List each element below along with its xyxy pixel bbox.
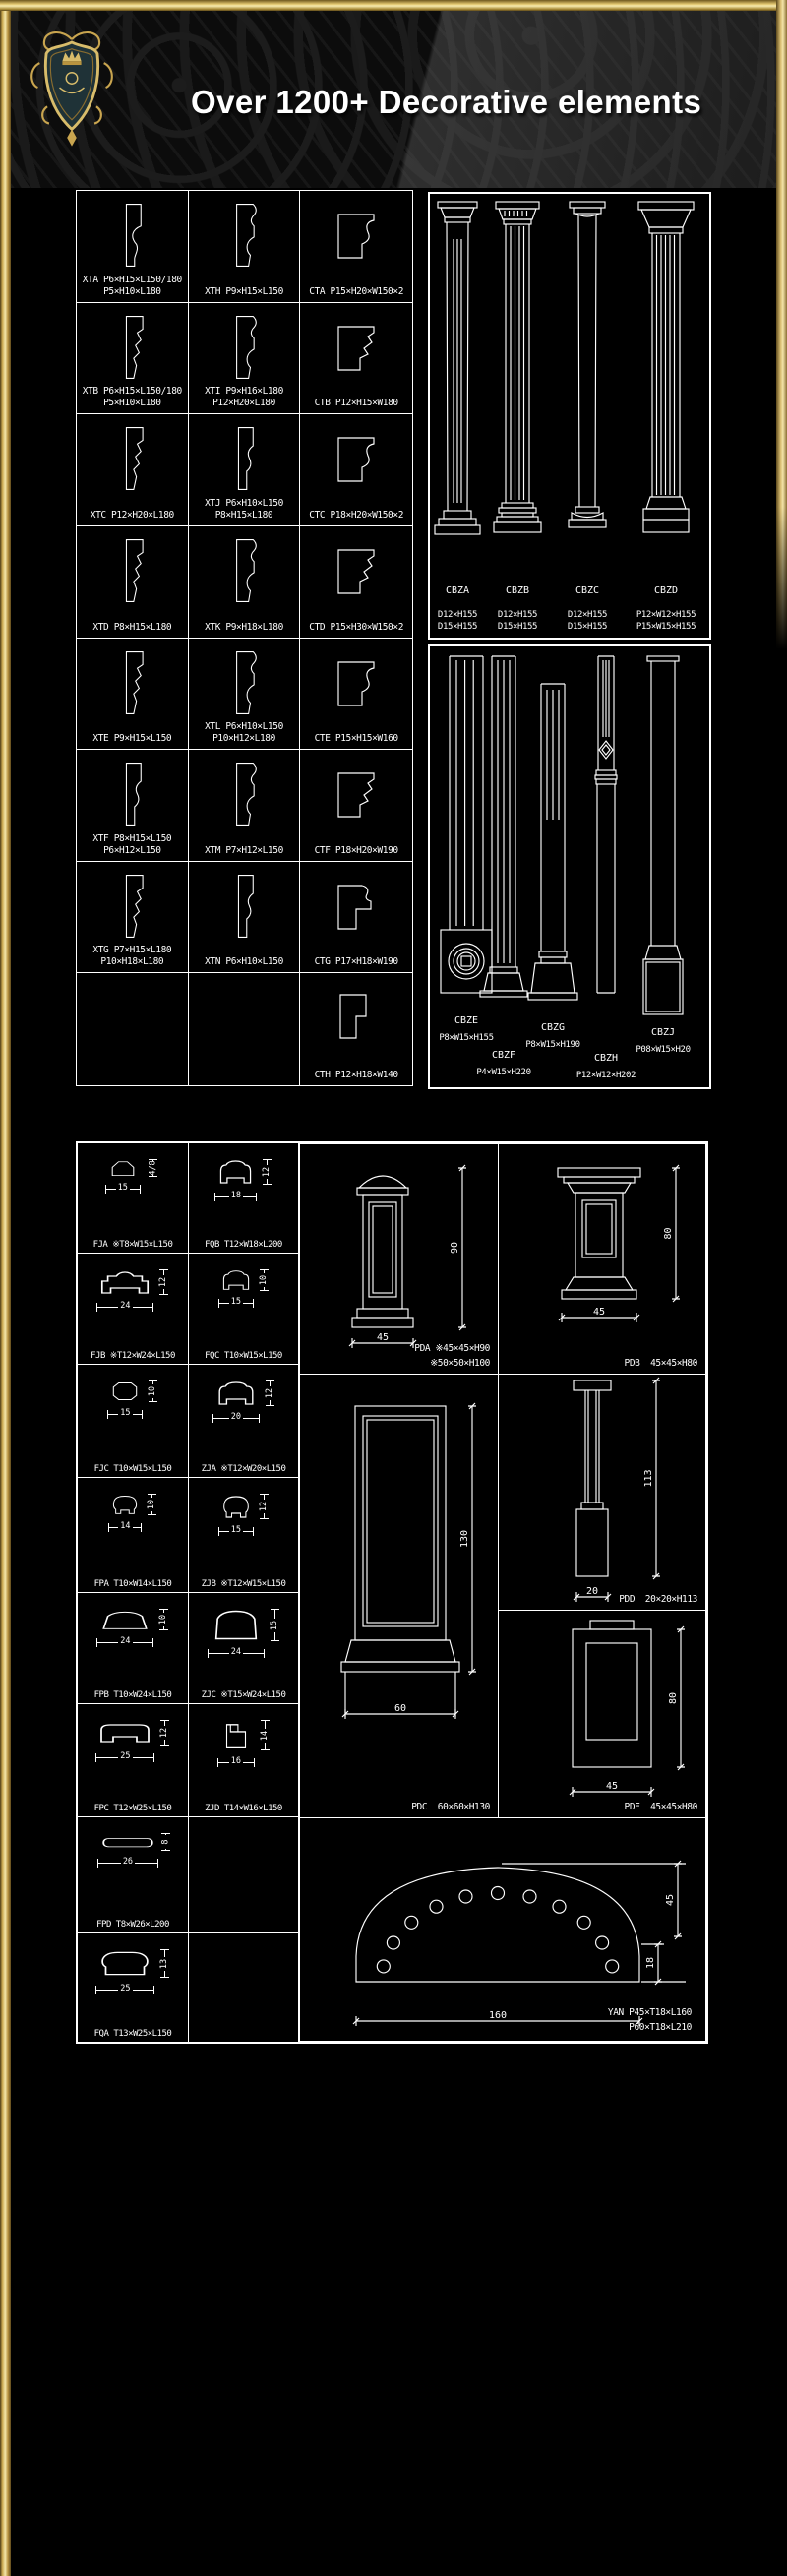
gold-frame-left	[0, 0, 11, 2576]
heraldic-crest-logo	[25, 25, 119, 154]
column-spec: D12×H155D15×H155	[552, 609, 623, 633]
height-dimension: 8	[163, 1833, 168, 1851]
molding-label-line2: P12×H20×L180	[212, 398, 275, 409]
molding-label: XTE P9×H15×L150	[92, 733, 171, 745]
molding-label: XTD P8×H15×L180	[92, 622, 171, 634]
molding-cell: XTG P7×H15×L180P10×H18×L180	[77, 862, 189, 974]
molding-cell: XTN P6×H10×L150	[189, 862, 301, 974]
height-dimension: 14	[260, 1720, 270, 1750]
profile-drawing	[97, 1833, 158, 1851]
profile-label: FPB T10×W24×L150	[78, 1690, 188, 1700]
molding-cell: XTA P6×H15×L150/180P5×H10×L180	[77, 191, 189, 303]
arch-cell-YAN: 1604518 YAN P45×T18×L160P60×T18×L210	[299, 1817, 706, 2042]
molding-cell: CTF P18×H20×W190	[300, 750, 412, 862]
profile-cell: 16 14 ZJD T14×W16×L150	[189, 1704, 299, 1817]
molding-label: XTK P9×H18×L180	[205, 622, 283, 634]
molding-cell: XTF P8×H15×L150P6×H12×L150	[77, 750, 189, 862]
height-dimension: 12	[262, 1159, 272, 1185]
molding-profile-drawing	[325, 542, 388, 601]
profile-cell: 24 12 FJB ※T12×W24×L150	[78, 1254, 189, 1365]
column-code: CBZF	[464, 1050, 543, 1061]
width-dimension: 18	[214, 1192, 257, 1201]
height-dimension: 10	[158, 1609, 168, 1630]
molding-label-line2: P5×H10×L180	[103, 398, 161, 409]
pedestal-drawing: 8045	[499, 1611, 705, 1817]
molding-label: XTG P7×H15×L180	[92, 945, 171, 956]
profile-cell: 15 10 FJC T10×W15×L150	[78, 1365, 189, 1478]
molding-cell: XTJ P6×H10×L150P8×H15×L180	[189, 414, 301, 526]
pedestal-drawing: 9045	[300, 1144, 498, 1374]
profile-figure: 15 10	[189, 1269, 298, 1308]
molding-profile-drawing	[103, 311, 160, 384]
molding-profile-drawing	[325, 430, 388, 489]
profile-label: FQC T10×W15×L150	[189, 1351, 298, 1361]
pedestal-drawing: 8045	[499, 1144, 705, 1374]
profile-drawing	[108, 1494, 142, 1515]
profile-drawing	[96, 1609, 153, 1630]
molding-profile-drawing	[215, 311, 272, 384]
molding-cell: XTK P9×H18×L180	[189, 526, 301, 639]
molding-profile-drawing	[215, 646, 272, 719]
molding-cell: XTM P7×H12×L150	[189, 750, 301, 862]
pedestal-label: PDE 45×45×H80	[625, 1800, 697, 1814]
molding-profile-drawing	[215, 422, 272, 495]
profile-figure: 24 10	[78, 1609, 188, 1647]
molding-label: XTF P8×H15×L150	[92, 833, 171, 845]
molding-profile-drawing	[215, 534, 272, 607]
profile-cell: 15 10 FQC T10×W15×L150	[189, 1254, 299, 1365]
profile-cell: 24 10 FPB T10×W24×L150	[78, 1593, 189, 1704]
width-dimension: 16	[217, 1757, 255, 1767]
profile-drawing	[105, 1159, 141, 1177]
pedestal-cell-PDC: 13060 PDC 60×60×H130	[299, 1374, 499, 1818]
molding-label-line2: P6×H12×L150	[103, 845, 161, 857]
svg-text:130: 130	[459, 1530, 470, 1548]
molding-cell: CTC P18×H20×W150×2	[300, 414, 412, 526]
molding-profile-drawing	[103, 758, 160, 830]
height-dimension: 10	[147, 1494, 156, 1515]
column-code: CBZC	[552, 585, 623, 596]
height-dimension: 12	[158, 1269, 168, 1295]
molding-label: XTL P6×H10×L150	[205, 721, 283, 733]
profile-label: FPC T12×W25×L150	[78, 1804, 188, 1813]
pedestal-cell-PDE: 8045 PDE 45×45×H80	[498, 1610, 706, 1818]
molding-label: CTC P18×H20×W150×2	[309, 510, 403, 521]
pedestal-label: PDA ※45×45×H90※50×50×H100	[414, 1341, 490, 1371]
svg-text:80: 80	[668, 1692, 679, 1704]
columns-panel-a: CBZA D12×H155D15×H155 CBZB D12×H155D15×H…	[428, 192, 711, 640]
column-item-CBZD: CBZD P12×W12×H155P15×W15×H155	[631, 194, 701, 638]
column-spec: P08×W15×H20	[624, 1044, 702, 1056]
profile-drawing	[208, 1609, 265, 1641]
molding-cell: CTG P17×H18×W190	[300, 862, 412, 974]
profile-figure: 16 14	[189, 1720, 298, 1767]
profile-cell: 25 13 FQA T13×W25×L150	[78, 1933, 189, 2042]
profile-cell: 14 10 FPA T10×W14×L150	[78, 1478, 189, 1593]
molding-cell: XTH P9×H15×L150	[189, 191, 301, 303]
molding-cell: CTH P12×H18×W140	[300, 973, 412, 1085]
molding-label: CTA P15×H20×W150×2	[309, 286, 403, 298]
svg-text:160: 160	[489, 2010, 507, 2021]
svg-text:80: 80	[663, 1227, 674, 1239]
profile-drawing	[95, 1720, 154, 1746]
column-drawing	[631, 200, 701, 544]
height-dimension: 12	[159, 1720, 169, 1746]
pedestal-drawing: 11320	[499, 1375, 705, 1610]
height-dimension: 12	[259, 1494, 269, 1519]
gold-frame-right	[776, 0, 787, 649]
profile-label: ZJC ※T15×W24×L150	[189, 1690, 298, 1700]
molding-label: XTC P12×H20×L180	[91, 510, 174, 521]
profile-drawing	[107, 1380, 143, 1402]
profile-figure: 14 10	[78, 1494, 188, 1532]
width-dimension: 15	[107, 1409, 143, 1419]
profile-figure: 15 12	[189, 1494, 298, 1536]
column-drawing	[635, 654, 692, 1022]
column-code: CBZJ	[624, 1027, 702, 1038]
pedestal-label: PDD 20×20×H113	[619, 1592, 697, 1607]
profile-drawing	[212, 1380, 260, 1406]
molding-label: CTF P18×H20×W190	[315, 845, 398, 857]
profile-drawing	[96, 1269, 153, 1295]
column-spec: P8×W15×H155	[427, 1032, 506, 1044]
column-code: CBZD	[631, 585, 701, 596]
profile-figure: 25 12	[78, 1720, 188, 1762]
molding-cell	[189, 973, 301, 1085]
profile-label: FQB T12×W18×L200	[189, 1240, 298, 1250]
molding-profile-drawing	[325, 207, 388, 266]
molding-label-line2: P10×H18×L180	[100, 956, 163, 968]
width-dimension: 15	[105, 1184, 141, 1194]
profile-figure: 26 8	[78, 1833, 188, 1868]
column-drawing	[524, 654, 581, 1022]
svg-text:45: 45	[665, 1894, 676, 1906]
molding-profile-drawing	[103, 422, 160, 495]
profile-drawing	[214, 1159, 257, 1185]
molding-profile-drawing	[103, 646, 160, 719]
profile-cell: 24 15 ZJC ※T15×W24×L150	[189, 1593, 299, 1704]
svg-text:20: 20	[586, 1586, 598, 1597]
molding-label: CTG P17×H18×W190	[315, 956, 398, 968]
pedestal-label: PDB 45×45×H80	[625, 1356, 697, 1371]
molding-label: XTN P6×H10×L150	[205, 956, 283, 968]
profile-figure: 20 12	[189, 1380, 298, 1423]
profile-cell: 25 12 FPC T12×W25×L150	[78, 1704, 189, 1817]
column-drawing	[577, 654, 635, 1022]
molding-label-line2: P8×H15×L180	[215, 510, 273, 521]
molding-label: CTB P12×H15×W180	[315, 398, 398, 409]
profile-label: FPD T8×W26×L200	[78, 1920, 188, 1930]
width-dimension: 15	[218, 1526, 254, 1536]
gold-frame-top	[0, 0, 787, 11]
profile-label: FJB ※T12×W24×L150	[78, 1351, 188, 1361]
molding-profile-drawing	[215, 870, 272, 943]
profile-cell: 26 8 FPD T8×W26×L200	[78, 1817, 189, 1933]
width-dimension: 20	[212, 1413, 260, 1423]
svg-text:90: 90	[450, 1242, 460, 1254]
column-spec: P8×W15×H190	[514, 1039, 592, 1051]
molding-profile-drawing	[325, 654, 388, 713]
molding-label-line2: P10×H12×L180	[212, 733, 275, 745]
profile-label: ZJD T14×W16×L150	[189, 1804, 298, 1813]
pedestal-cell-PDA: 9045 PDA ※45×45×H90※50×50×H100	[299, 1143, 499, 1375]
molding-label: XTB P6×H15×L150/180	[83, 386, 182, 398]
profile-label: ZJB ※T12×W15×L150	[189, 1579, 298, 1589]
profile-figure: 25 13	[78, 1949, 188, 1994]
molding-cell: CTE P15×H15×W160	[300, 639, 412, 751]
molding-cell: XTB P6×H15×L150/180P5×H10×L180	[77, 303, 189, 415]
width-dimension: 24	[96, 1637, 153, 1647]
header-banner: Over 1200+ Decorative elements	[11, 11, 776, 188]
profile-drawing	[218, 1269, 254, 1291]
molding-profile-drawing	[103, 870, 160, 943]
width-dimension: 15	[218, 1298, 254, 1308]
column-item-CBZB: CBZB D12×H155D15×H155	[482, 194, 553, 638]
svg-text:45: 45	[377, 1332, 389, 1343]
profile-cell: 20 12 ZJA ※T12×W20×L150	[189, 1365, 299, 1478]
column-spec: P12×W12×H155P15×W15×H155	[631, 609, 701, 633]
column-item-CBZC: CBZC D12×H155D15×H155	[552, 194, 623, 638]
molding-profile-drawing	[215, 199, 272, 272]
molding-label: CTE P15×H15×W160	[315, 733, 398, 745]
arch-label: YAN P45×T18×L160P60×T18×L210	[608, 2005, 692, 2035]
height-dimension: 4/8	[146, 1159, 160, 1177]
molding-label: CTH P12×H18×W140	[315, 1070, 398, 1081]
molding-label: XTA P6×H15×L150/180	[83, 275, 182, 286]
width-dimension: 26	[97, 1858, 158, 1868]
profile-label: FJC T10×W15×L150	[78, 1464, 188, 1474]
profile-cell: 18 12 FQB T12×W18×L200	[189, 1143, 299, 1254]
width-dimension: 24	[96, 1302, 153, 1312]
profile-cell: 15 12 ZJB ※T12×W15×L150	[189, 1478, 299, 1593]
profile-label: FQA T13×W25×L150	[78, 2029, 188, 2039]
column-drawing	[552, 200, 623, 544]
column-spec: P4×W15×H220	[464, 1067, 543, 1078]
molding-cell: CTB P12×H15×W180	[300, 303, 412, 415]
molding-profile-drawing	[325, 989, 388, 1048]
svg-text:45: 45	[606, 1781, 618, 1792]
molding-cell: XTE P9×H15×L150	[77, 639, 189, 751]
profile-figure: 24 12	[78, 1269, 188, 1312]
column-code: CBZB	[482, 585, 553, 596]
molding-cell: XTL P6×H10×L150P10×H12×L180	[189, 639, 301, 751]
profile-figure: 18 12	[189, 1159, 298, 1201]
molding-profile-drawing	[325, 766, 388, 825]
profile-drawing	[95, 1949, 154, 1978]
column-spec: D12×H155D15×H155	[482, 609, 553, 633]
profile-figure: 24 15	[189, 1609, 298, 1658]
molding-cell	[77, 973, 189, 1085]
molding-profile-drawing	[103, 534, 160, 607]
molding-label: XTI P9×H16×L180	[205, 386, 283, 398]
molding-label: XTJ P6×H10×L150	[205, 498, 283, 510]
height-dimension: 10	[148, 1380, 157, 1402]
width-dimension: 14	[108, 1522, 142, 1532]
pedestal-label: PDC 60×60×H130	[411, 1800, 490, 1814]
pedestal-drawing: 13060	[300, 1375, 498, 1817]
molding-cell: XTI P9×H16×L180P12×H20×L180	[189, 303, 301, 415]
profile-cell	[189, 1817, 299, 1933]
profile-cell	[189, 1933, 299, 2042]
profile-drawing	[217, 1720, 255, 1750]
column-code: CBZG	[514, 1022, 592, 1033]
profile-label: FPA T10×W14×L150	[78, 1579, 188, 1589]
columns-panel-b: CBZE P8×W15×H155 CBZF P4×W15×H220 CBZG P…	[428, 644, 711, 1089]
molding-cell: CTA P15×H20×W150×2	[300, 191, 412, 303]
molding-label: CTD P15×H30×W150×2	[309, 622, 403, 634]
width-dimension: 25	[95, 1752, 154, 1762]
molding-cell: CTD P15×H30×W150×2	[300, 526, 412, 639]
molding-cell: XTC P12×H20×L180	[77, 414, 189, 526]
svg-text:45: 45	[593, 1307, 605, 1318]
svg-text:60: 60	[394, 1703, 406, 1714]
profile-drawing	[218, 1494, 254, 1519]
profile-cell: 15 4/8 FJA ※T8×W15×L150	[78, 1143, 189, 1254]
column-drawing	[482, 200, 553, 544]
height-dimension: 12	[265, 1380, 274, 1406]
profile-label: FJA ※T8×W15×L150	[78, 1240, 188, 1250]
pedestal-cell-PDD: 11320 PDD 20×20×H113	[498, 1374, 706, 1611]
width-dimension: 25	[95, 1985, 154, 1994]
svg-text:113: 113	[643, 1469, 654, 1487]
banner-title: Over 1200+ Decorative elements	[191, 84, 701, 121]
profile-figure: 15 4/8	[78, 1159, 188, 1194]
width-dimension: 24	[208, 1648, 265, 1658]
molding-profile-drawing	[215, 758, 272, 830]
molding-label: XTH P9×H15×L150	[205, 286, 283, 298]
svg-text:18: 18	[645, 1957, 656, 1969]
profile-label: ZJA ※T12×W20×L150	[189, 1464, 298, 1474]
height-dimension: 15	[270, 1609, 279, 1641]
molding-cell: XTD P8×H15×L180	[77, 526, 189, 639]
balusters-pedestals-panel: 15 4/8 FJA ※T8×W15×L150 18 12 FQB T12×W1…	[76, 1141, 708, 2044]
height-dimension: 10	[259, 1269, 269, 1291]
molding-profile-drawing	[325, 878, 388, 937]
molding-profile-drawing	[103, 199, 160, 272]
height-dimension: 13	[159, 1949, 169, 1978]
column-spec: P12×W12×H202	[567, 1070, 645, 1081]
moldings-table: XTA P6×H15×L150/180P5×H10×L180XTH P9×H15…	[76, 190, 413, 1086]
pedestal-cell-PDB: 8045 PDB 45×45×H80	[498, 1143, 706, 1375]
profile-figure: 15 10	[78, 1380, 188, 1419]
molding-label-line2: P5×H10×L180	[103, 286, 161, 298]
molding-label: XTM P7×H12×L150	[205, 845, 283, 857]
molding-profile-drawing	[325, 319, 388, 378]
